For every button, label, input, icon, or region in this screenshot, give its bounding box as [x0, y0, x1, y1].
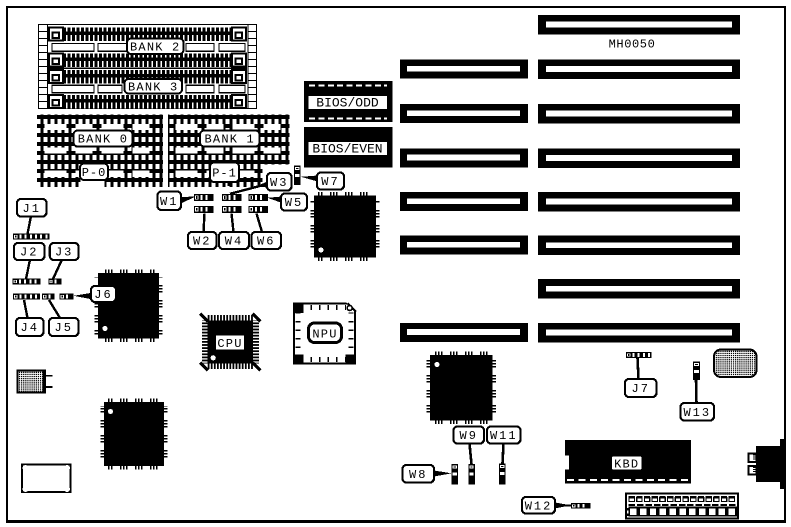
- svg-text:BIOS/EVEN: BIOS/EVEN: [312, 141, 382, 156]
- svg-text:W4: W4: [225, 235, 243, 249]
- svg-text:W12: W12: [525, 499, 553, 513]
- svg-text:KBD: KBD: [614, 457, 639, 471]
- svg-text:W1: W1: [160, 195, 178, 209]
- svg-text:W6: W6: [257, 235, 275, 249]
- svg-text:NPU: NPU: [312, 328, 337, 342]
- svg-text:CPU: CPU: [217, 337, 242, 351]
- svg-text:P-0: P-0: [82, 166, 107, 180]
- svg-text:J2: J2: [20, 246, 38, 260]
- svg-text:P-1: P-1: [212, 166, 237, 180]
- svg-text:J3: J3: [55, 246, 73, 260]
- svg-text:BANK 3: BANK 3: [128, 80, 178, 94]
- svg-text:W11: W11: [490, 429, 518, 443]
- svg-text:J5: J5: [55, 321, 73, 335]
- svg-text:BANK 0: BANK 0: [78, 133, 128, 147]
- svg-text:W7: W7: [321, 175, 339, 189]
- svg-text:W2: W2: [193, 235, 211, 249]
- svg-text:W13: W13: [683, 406, 711, 420]
- svg-text:BANK 1: BANK 1: [205, 133, 255, 147]
- svg-text:W9: W9: [460, 429, 478, 443]
- svg-text:MH0050: MH0050: [609, 38, 656, 52]
- svg-text:J6: J6: [94, 288, 112, 302]
- svg-text:W3: W3: [270, 176, 288, 190]
- svg-text:J4: J4: [21, 321, 39, 335]
- svg-text:BIOS/ODD: BIOS/ODD: [316, 95, 379, 110]
- svg-text:W5: W5: [285, 196, 303, 210]
- svg-text:W8: W8: [409, 468, 427, 482]
- svg-text:J7: J7: [632, 382, 650, 396]
- svg-text:BANK 2: BANK 2: [130, 40, 180, 54]
- svg-text:J1: J1: [23, 202, 41, 216]
